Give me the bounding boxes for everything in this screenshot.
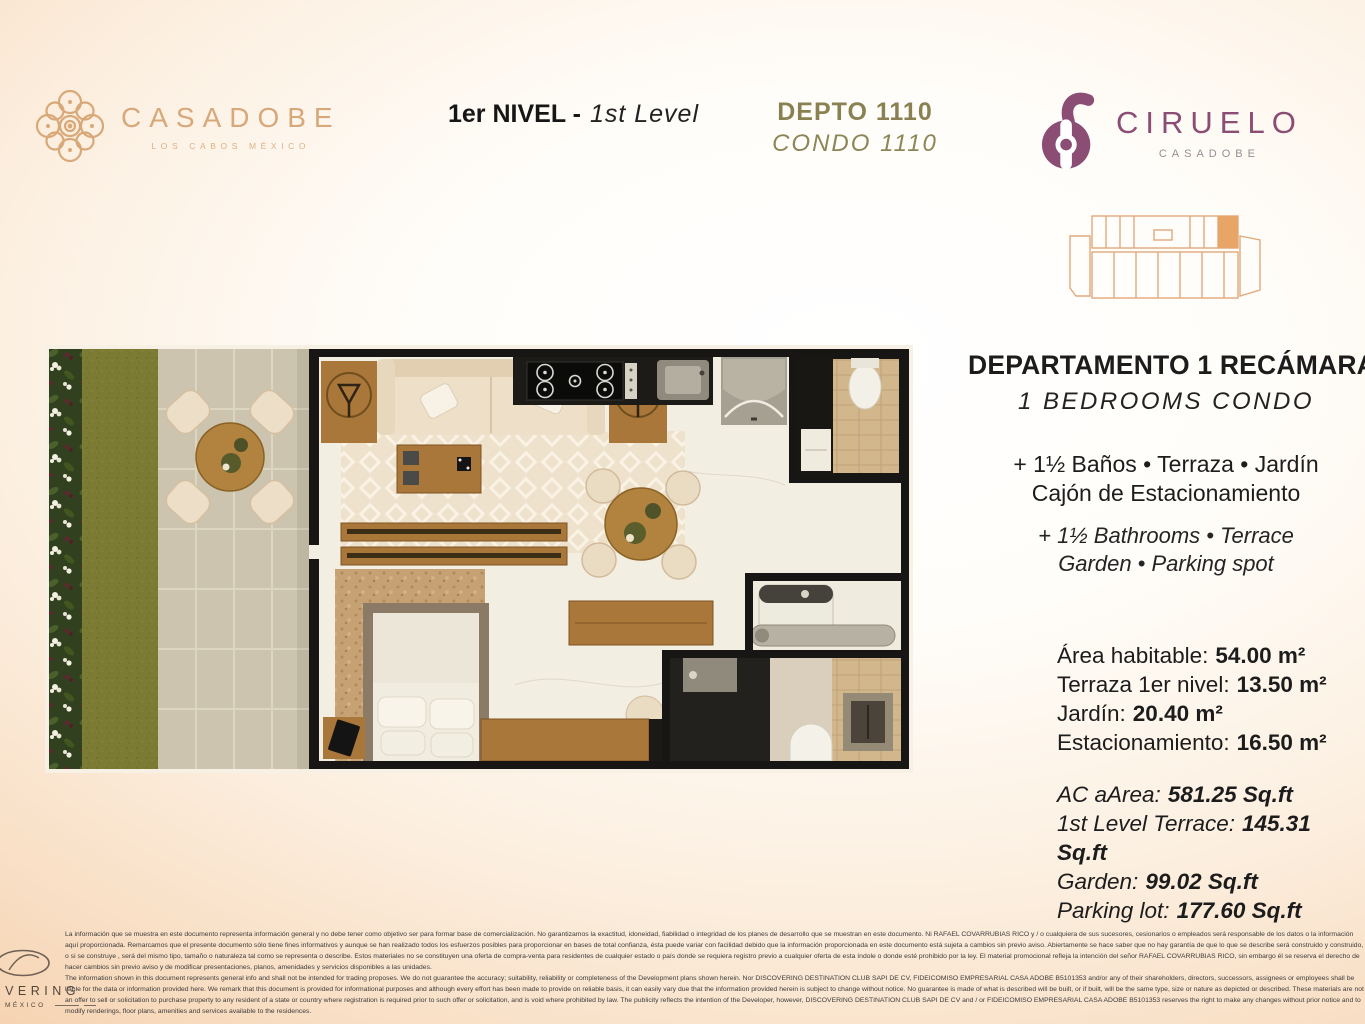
area-label: Parking lot: bbox=[1057, 898, 1170, 923]
half-bathroom bbox=[797, 357, 901, 475]
area-row: Jardín:20.40 m² bbox=[1057, 699, 1327, 728]
level-title: 1er NIVEL -1st Level bbox=[448, 100, 699, 129]
garden-grass bbox=[82, 349, 158, 769]
brochure-page: CASADOBE LOS CABOS MÉXICO 1er NIVEL -1st… bbox=[0, 0, 1365, 1024]
unit-number-en: CONDO 1110 bbox=[765, 130, 945, 158]
area-label: Área habitable: bbox=[1057, 643, 1208, 668]
unit-type-title-en: 1 BEDROOMS CONDO bbox=[968, 388, 1364, 416]
area-value: 20.40 m² bbox=[1133, 701, 1223, 726]
area-label: 1st Level Terrace: bbox=[1057, 811, 1235, 836]
features-en-line2: Garden • Parking spot bbox=[968, 550, 1364, 578]
area-value: 99.02 Sq.ft bbox=[1145, 869, 1258, 894]
bedroom bbox=[323, 569, 489, 761]
building-location-diagram bbox=[1066, 212, 1264, 304]
casadobe-tagline: LOS CABOS MÉXICO bbox=[121, 141, 341, 151]
unit-number-es: DEPTO 1110 bbox=[765, 98, 945, 127]
chevron-left-watermark: ‹ bbox=[920, 468, 953, 568]
areas-imperial-list: AC aArea:581.25 Sq.ft 1st Level Terrace:… bbox=[1057, 780, 1365, 925]
laundry bbox=[751, 581, 901, 651]
area-row: 1st Level Terrace:145.31 Sq.ft bbox=[1057, 809, 1365, 867]
disclaimer-es: La información que se muestra en este do… bbox=[65, 929, 1365, 973]
area-label: Jardín: bbox=[1057, 701, 1126, 726]
area-row: Terraza 1er nivel:13.50 m² bbox=[1057, 670, 1327, 699]
area-label: Estacionamiento: bbox=[1057, 730, 1230, 755]
area-row: Estacionamiento:16.50 m² bbox=[1057, 728, 1327, 757]
area-value: 177.60 Sq.ft bbox=[1177, 898, 1302, 923]
features-en: + 1½ Bathrooms • Terrace Garden • Parkin… bbox=[968, 522, 1364, 578]
area-value: 54.00 m² bbox=[1215, 643, 1305, 668]
area-value: 16.50 m² bbox=[1237, 730, 1327, 755]
features-es-line1: + 1½ Baños • Terraza • Jardín bbox=[968, 450, 1364, 479]
casadobe-rosette-icon bbox=[33, 84, 107, 168]
areas-metric-list: Área habitable:54.00 m² Terraza 1er nive… bbox=[1057, 641, 1327, 757]
ciruelo-wordmark: CIRUELO bbox=[1116, 105, 1303, 141]
ciruelo-logo: CIRUELO CASADOBE bbox=[1040, 90, 1303, 174]
area-value: 13.50 m² bbox=[1237, 672, 1327, 697]
main-bathroom bbox=[670, 658, 901, 761]
features-en-line1: + 1½ Bathrooms • Terrace bbox=[968, 522, 1364, 550]
ciruelo-plum-icon bbox=[1040, 90, 1098, 174]
legal-disclaimer: La información que se muestra en este do… bbox=[65, 929, 1365, 1017]
area-row: Parking lot:177.60 Sq.ft bbox=[1057, 896, 1365, 925]
unit-type-title-es: DEPARTAMENTO 1 RECÁMARA bbox=[968, 350, 1364, 381]
ciruelo-subbrand: CASADOBE bbox=[1116, 148, 1303, 160]
area-label: AC aArea: bbox=[1057, 782, 1161, 807]
highlighted-unit bbox=[1218, 216, 1238, 248]
area-row: AC aArea:581.25 Sq.ft bbox=[1057, 780, 1365, 809]
discovering-oval-icon bbox=[0, 948, 63, 980]
discovering-sub: MÉXICO bbox=[5, 1002, 46, 1009]
area-value: 581.25 Sq.ft bbox=[1168, 782, 1293, 807]
area-label: Terraza 1er nivel: bbox=[1057, 672, 1230, 697]
disclaimer-en: The information shown in this document r… bbox=[65, 973, 1365, 1017]
garden-flower-bed bbox=[49, 349, 82, 769]
unit-number: DEPTO 1110 CONDO 1110 bbox=[765, 98, 945, 158]
casadobe-logo: CASADOBE LOS CABOS MÉXICO bbox=[33, 84, 341, 168]
level-title-es: 1er NIVEL - bbox=[448, 100, 581, 128]
floor-plan bbox=[45, 345, 913, 773]
casadobe-wordmark: CASADOBE bbox=[121, 102, 341, 134]
kitchen bbox=[513, 357, 713, 405]
features-es: + 1½ Baños • Terraza • Jardín Cajón de E… bbox=[968, 450, 1364, 508]
area-row: Garden:99.02 Sq.ft bbox=[1057, 867, 1365, 896]
unit-details: DEPARTAMENTO 1 RECÁMARA 1 BEDROOMS CONDO… bbox=[968, 350, 1364, 650]
media-console bbox=[569, 601, 713, 645]
shower-stall bbox=[721, 357, 787, 425]
area-row: Área habitable:54.00 m² bbox=[1057, 641, 1327, 670]
area-label: Garden: bbox=[1057, 869, 1138, 894]
level-title-en: 1st Level bbox=[590, 100, 699, 128]
features-es-line2: Cajón de Estacionamiento bbox=[968, 479, 1364, 508]
